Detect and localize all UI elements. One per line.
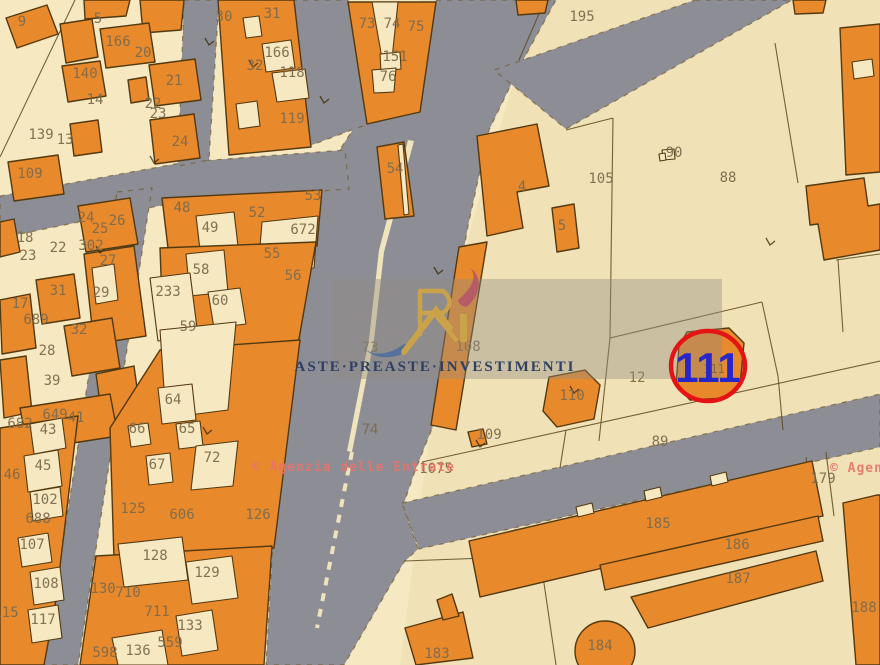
parcel-label: 130 <box>90 581 115 597</box>
parcel-label: 55 <box>264 246 281 262</box>
agenzia-watermark: © Agenzia delle Entrate <box>252 460 455 475</box>
parcel-label: 559 <box>157 635 182 651</box>
parcel-label: 23 <box>20 248 37 264</box>
parcel-label: 136 <box>125 643 150 659</box>
parcel-label: 32 <box>71 322 88 338</box>
parcel-label: 688 <box>25 511 50 527</box>
parcel-inset <box>243 16 262 38</box>
parcel-label: 74 <box>384 16 401 32</box>
parcel-label: 140 <box>72 66 97 82</box>
parcel-label: 21 <box>166 73 183 89</box>
parcel-label: 184 <box>587 638 612 654</box>
parcel-label: 76 <box>380 69 397 85</box>
parcel-label: 711 <box>144 604 169 620</box>
parcel-label: 710 <box>115 585 140 601</box>
parcel-label: 49 <box>202 220 219 236</box>
parcel-label: 31 <box>264 6 281 22</box>
parcel-label: 108 <box>33 576 58 592</box>
highlight-parcel-number: 111 <box>675 344 740 391</box>
parcel-label: 31 <box>50 283 67 299</box>
parcel-label: 39 <box>44 373 61 389</box>
parcel-label: 46 <box>4 467 21 483</box>
parcel-label: 22 <box>50 240 67 256</box>
parcel-label: 25 <box>92 221 109 237</box>
parcel-label: 133 <box>177 618 202 634</box>
parcel-label: 5 <box>558 218 566 234</box>
building <box>84 0 130 19</box>
parcel-label: 67 <box>149 457 166 473</box>
parcel-label: 72 <box>204 450 221 466</box>
parcel-label: 14 <box>87 92 104 108</box>
cadastral-map[interactable]: 9516620140211422231391324109303116632118… <box>0 0 880 665</box>
parcel-label: 151 <box>382 49 407 65</box>
parcel-label: 48 <box>174 200 191 216</box>
parcel-label: 65 <box>179 421 196 437</box>
parcel-label: 233 <box>155 284 180 300</box>
building <box>793 0 826 14</box>
parcel-label: 606 <box>169 507 194 523</box>
parcel-label: 302 <box>78 238 103 254</box>
parcel-label: 110 <box>559 388 584 404</box>
parcel-label: 139 <box>28 127 53 143</box>
parcel-label: 32 <box>247 58 264 74</box>
parcel-label: 28 <box>39 343 56 359</box>
brand-watermark: ASTE·PREASTE·INVESTIMENTI <box>295 268 722 379</box>
parcel-label: 119 <box>279 111 304 127</box>
parcel-label: 105 <box>588 171 613 187</box>
parcel-label: 186 <box>724 537 749 553</box>
parcel-label: 672 <box>290 222 315 238</box>
parcel-label: 689 <box>23 312 48 328</box>
building <box>60 19 98 63</box>
parcel-label: 4 <box>518 179 526 195</box>
parcel-label: 107 <box>19 537 44 553</box>
parcel-label: 58 <box>193 262 210 278</box>
brand-watermark-text: ASTE·PREASTE·INVESTIMENTI <box>295 359 576 375</box>
parcel-label: 90 <box>666 145 683 161</box>
parcel-label: 59 <box>180 319 197 335</box>
parcel-label: 166 <box>264 45 289 61</box>
parcel-label: 89 <box>652 434 669 450</box>
parcel-label: 166 <box>105 34 130 50</box>
parcel-label: 23 <box>150 106 167 122</box>
parcel-label: 187 <box>725 571 750 587</box>
parcel-label: 129 <box>194 565 219 581</box>
parcel-label: 185 <box>645 516 670 532</box>
parcel-label: 195 <box>569 9 594 25</box>
parcel-inset <box>852 59 874 79</box>
parcel-label: 5 <box>94 11 102 27</box>
parcel-label: 682 <box>7 416 32 432</box>
parcel-label: 128 <box>142 548 167 564</box>
parcel-label: 29 <box>93 285 110 301</box>
parcel-label: 66 <box>129 421 146 437</box>
parcel-label: 60 <box>212 293 229 309</box>
parcel-label: 13 <box>57 132 74 148</box>
parcel-label: 109 <box>17 166 42 182</box>
parcel-label: 118 <box>279 65 304 81</box>
building <box>70 120 102 156</box>
parcel-label: 30 <box>216 9 233 25</box>
parcel-label: 43 <box>40 422 57 438</box>
parcel-label: 54 <box>387 161 404 177</box>
parcel-label: 102 <box>32 492 57 508</box>
parcel-label: 24 <box>172 134 189 150</box>
parcel-label: 109 <box>476 427 501 443</box>
parcel-label: 17 <box>12 296 29 312</box>
parcel-label: 188 <box>851 600 876 616</box>
parcel-label: 117 <box>30 612 55 628</box>
parcel-label: 115 <box>0 605 19 621</box>
parcel-label: 649 <box>42 407 67 423</box>
parcel-label: 20 <box>135 45 152 61</box>
parcel-label: 75 <box>408 19 425 35</box>
building <box>516 0 548 15</box>
parcel-label: 9 <box>18 14 26 30</box>
parcel-label: 73 <box>359 16 376 32</box>
parcel-label: 52 <box>249 205 266 221</box>
parcel-inset <box>236 101 260 129</box>
parcel-label: 53 <box>305 188 322 204</box>
parcel-label: 88 <box>720 170 737 186</box>
building <box>840 24 880 175</box>
parcel-label: 64 <box>165 392 182 408</box>
parcel-label: 27 <box>100 253 117 269</box>
parcel-label: 18 <box>17 230 34 246</box>
parcel-label: 74 <box>362 422 379 438</box>
parcel-label: 56 <box>285 268 302 284</box>
parcel-label: 125 <box>120 501 145 517</box>
parcel-label: 598 <box>92 645 117 661</box>
parcel-label: 45 <box>35 458 52 474</box>
parcel-label: 41 <box>68 410 85 426</box>
agenzia-watermark: © Agenzia delle Entrate <box>830 461 880 476</box>
parcel-label: 126 <box>245 507 270 523</box>
parcel-label: 183 <box>424 646 449 662</box>
parcel-label: 26 <box>109 213 126 229</box>
